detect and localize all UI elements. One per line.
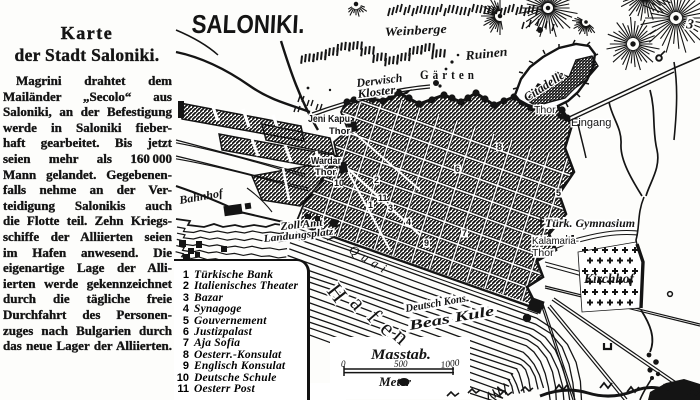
svg-text:6: 6	[455, 164, 460, 174]
svg-text:Bahnhof: Bahnhof	[177, 187, 225, 207]
svg-text:9: 9	[424, 238, 429, 248]
svg-text:10: 10	[334, 178, 344, 188]
svg-text:Jeni Kapu: Jeni Kapu	[308, 114, 350, 125]
svg-text:11: 11	[378, 193, 388, 203]
svg-text:SALONIKI.: SALONIKI.	[191, 9, 306, 39]
svg-text:2: 2	[374, 175, 379, 185]
svg-text:1: 1	[368, 200, 373, 210]
svg-text:Thor: Thor	[532, 247, 554, 259]
svg-text:5: 5	[556, 188, 561, 198]
svg-text:Wardar: Wardar	[311, 156, 341, 167]
svg-text:Thor: Thor	[329, 126, 350, 137]
svg-text:3: 3	[388, 203, 393, 213]
svg-text:Weinberge: Weinberge	[384, 22, 447, 39]
svg-text:Kirchhof: Kirchhof	[583, 271, 635, 286]
svg-text:8: 8	[497, 142, 502, 152]
svg-text:Gärten: Gärten	[420, 68, 478, 82]
svg-text:500: 500	[394, 359, 408, 369]
svg-text:Thor: Thor	[534, 104, 556, 116]
svg-text:0: 0	[341, 359, 346, 369]
svg-text:Kalamaria-: Kalamaria-	[532, 235, 579, 247]
svg-text:4: 4	[406, 217, 411, 227]
svg-text:Thor: Thor	[315, 167, 336, 178]
svg-text:Ruinen: Ruinen	[464, 44, 508, 63]
svg-text:7: 7	[462, 228, 467, 238]
svg-text:Eingang: Eingang	[571, 117, 611, 129]
svg-text:Türk. Gymnasium: Türk. Gymnasium	[545, 216, 635, 230]
